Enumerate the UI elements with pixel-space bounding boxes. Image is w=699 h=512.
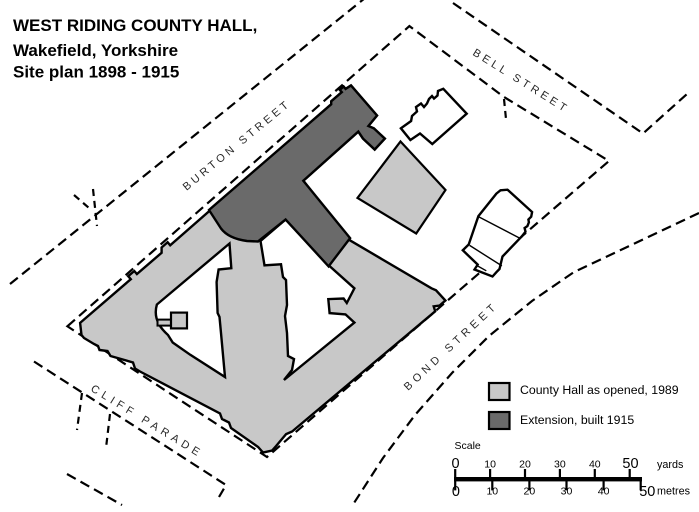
svg-text:20: 20 [519, 459, 531, 471]
svg-text:10: 10 [484, 459, 496, 471]
svg-text:Wakefield, Yorkshire: Wakefield, Yorkshire [13, 41, 178, 60]
svg-text:40: 40 [598, 486, 610, 498]
svg-text:Scale: Scale [455, 440, 481, 452]
svg-text:40: 40 [589, 459, 601, 471]
svg-text:Site plan 1898 - 1915: Site plan 1898 - 1915 [13, 63, 179, 82]
svg-text:30: 30 [561, 486, 573, 498]
svg-text:County Hall as opened, 1989: County Hall as opened, 1989 [520, 383, 679, 397]
svg-text:0: 0 [451, 456, 459, 472]
svg-text:WEST RIDING COUNTY HALL,: WEST RIDING COUNTY HALL, [13, 16, 257, 35]
svg-text:30: 30 [554, 459, 566, 471]
svg-text:0: 0 [452, 484, 460, 500]
svg-text:yards: yards [657, 459, 684, 471]
svg-text:metres: metres [657, 486, 691, 498]
svg-text:50: 50 [639, 484, 655, 500]
svg-text:20: 20 [524, 486, 536, 498]
svg-text:Extension, built 1915: Extension, built 1915 [520, 413, 634, 427]
svg-text:50: 50 [622, 456, 638, 472]
svg-text:10: 10 [486, 486, 498, 498]
